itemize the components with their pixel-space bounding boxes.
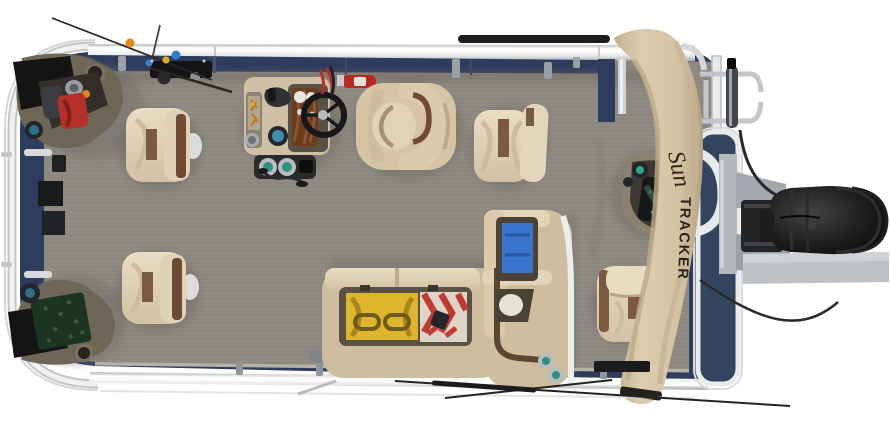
svg-text:TRACKER: TRACKER [674, 197, 693, 281]
